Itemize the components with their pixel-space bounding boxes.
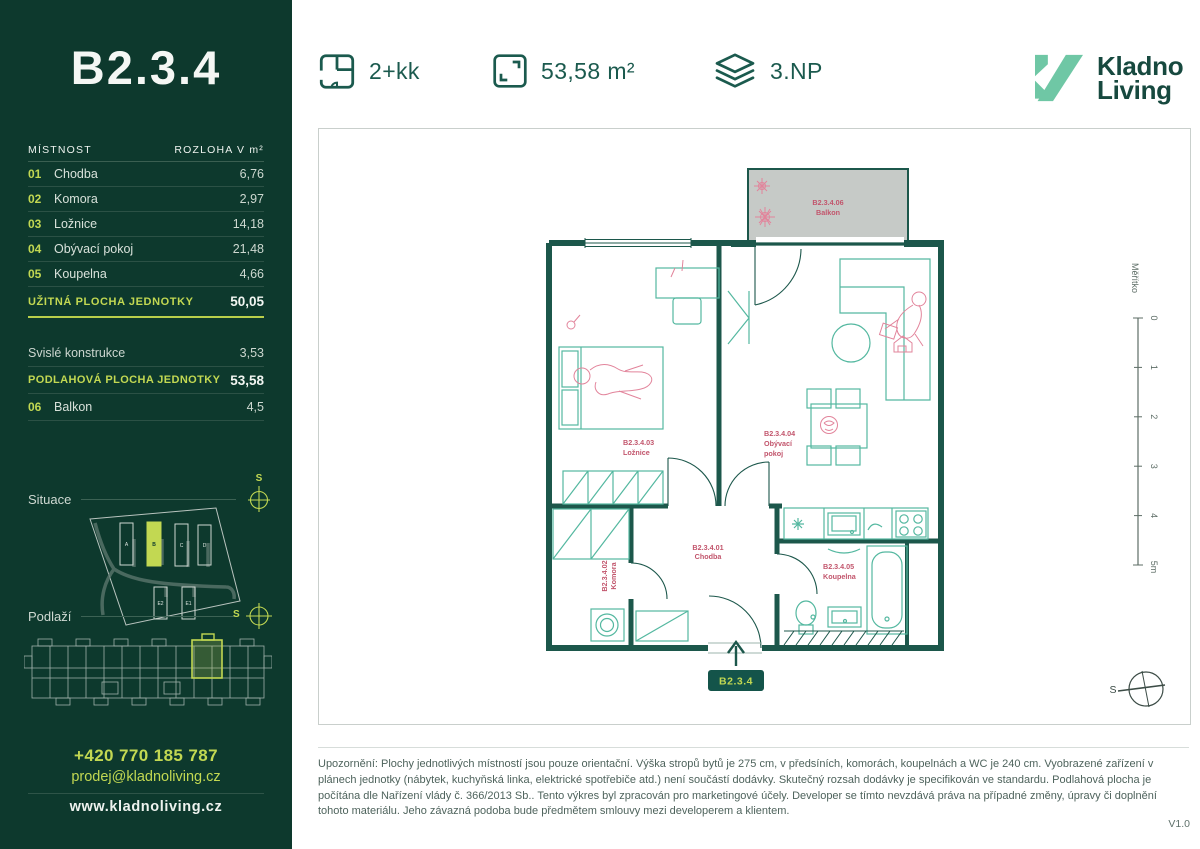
- table-row: 04 Obývací pokoj 21,48: [28, 237, 264, 262]
- compass-letter: S: [1109, 684, 1116, 696]
- table-row: 01 Chodba 6,76: [28, 162, 264, 187]
- entry-marker: B2.3.4: [708, 642, 764, 691]
- plan-frame: B2.3.4.01 Chodba B2.3.4.02 Komora B2.3.4…: [318, 128, 1191, 725]
- area-icon: [492, 53, 528, 89]
- scale-tick: 3: [1149, 464, 1159, 469]
- room-label-bathroom-id: B2.3.4.05: [823, 562, 854, 571]
- floor-area-row: PODLAHOVÁ PLOCHA JEDNOTKY 53,58: [28, 367, 264, 394]
- feature-floor: 3.NP: [713, 52, 823, 90]
- kladno-living-logo-mark: [1033, 54, 1085, 102]
- north-compass: S: [1109, 671, 1165, 707]
- building-label: A: [125, 542, 129, 548]
- table-header: MÍSTNOST ROZLOHA V m²: [28, 136, 264, 162]
- layout-label: 2+kk: [369, 58, 420, 85]
- floor-strip: [24, 626, 272, 712]
- brand-name-line2: Living: [1097, 78, 1183, 102]
- scale-tick: 4: [1149, 513, 1159, 518]
- room-label-living-name1: Obývací: [764, 439, 793, 448]
- room-label-balcony-name: Balkon: [816, 208, 840, 217]
- floorplan-sheet: B2.3.4 MÍSTNOST ROZLOHA V m² 01 Chodba 6…: [0, 0, 1200, 849]
- contact-divider: [28, 793, 264, 794]
- kitchen: [784, 508, 928, 539]
- room-label-hall-id: B2.3.4.01: [692, 543, 723, 552]
- room-label-bedroom-id: B2.3.4.03: [623, 438, 654, 447]
- table-row: 05 Koupelna 4,66: [28, 262, 264, 287]
- table-row: 02 Komora 2,97: [28, 187, 264, 212]
- disclaimer-text: Upozornění: Plochy jednotlivých místnost…: [318, 757, 1176, 820]
- contact-web: www.kladnoliving.cz: [0, 799, 292, 815]
- unit-title: B2.3.4: [0, 40, 292, 95]
- floorplan-drawing: B2.3.4.01 Chodba B2.3.4.02 Komora B2.3.4…: [319, 129, 1190, 724]
- table-row: 03 Ložnice 14,18: [28, 212, 264, 237]
- room-labels: B2.3.4.01 Chodba B2.3.4.02 Komora B2.3.4…: [600, 198, 857, 592]
- contact-phone: +420 770 185 787: [0, 746, 292, 766]
- scale-tick: 5m: [1149, 561, 1159, 574]
- version-label: V1.0: [1168, 818, 1190, 830]
- room-label-hall-name: Chodba: [695, 552, 723, 561]
- doors: [631, 247, 817, 653]
- construction-row: Svislé konstrukce 3,53: [28, 340, 264, 367]
- col-area: ROZLOHA V m²: [174, 144, 264, 156]
- contact-email: prodej@kladnoliving.cz: [0, 769, 292, 785]
- floor-icon: [713, 53, 757, 89]
- room-label-living-name2: pokoj: [764, 449, 783, 458]
- living-furniture: [728, 259, 930, 465]
- scale-bar: Měřítko 0 1 2 3 4 5m: [1130, 263, 1159, 573]
- room-label-bathroom-name: Koupelna: [823, 572, 857, 581]
- bedroom-furniture: [559, 268, 719, 504]
- room-label-bedroom-name: Ložnice: [623, 448, 650, 457]
- room-label-storage-id: B2.3.4.02: [600, 560, 609, 591]
- brand-logo: Kladno Living: [1033, 54, 1183, 102]
- bathroom-mat-hatch: [784, 631, 904, 645]
- room-label-balcony-id: B2.3.4.06: [812, 198, 843, 207]
- footer-divider: [318, 747, 1189, 748]
- podlazi-label: Podlaží: [28, 609, 71, 624]
- usable-area-row: UŽITNÁ PLOCHA JEDNOTKY 50,05: [28, 287, 264, 318]
- feature-layout: 2+kk: [318, 52, 420, 90]
- balcony-row: 06 Balkon 4,5: [28, 394, 264, 421]
- room-label-living-id: B2.3.4.04: [764, 429, 795, 438]
- scale-title: Měřítko: [1130, 263, 1140, 293]
- bathroom-fixtures: [796, 546, 907, 634]
- building-label: B: [152, 542, 156, 548]
- feature-area: 53,58 m²: [492, 52, 635, 90]
- col-room: MÍSTNOST: [28, 144, 92, 156]
- room-label-storage-name: Komora: [609, 561, 618, 589]
- scale-tick: 0: [1149, 315, 1159, 320]
- entry-badge-label: B2.3.4: [719, 676, 753, 688]
- highlighted-unit: [192, 634, 222, 678]
- scale-tick: 1: [1149, 365, 1159, 370]
- floor-label: 3.NP: [770, 58, 823, 85]
- scale-tick: 2: [1149, 414, 1159, 419]
- area-label: 53,58 m²: [541, 58, 635, 85]
- floorplan-icon: [318, 53, 356, 90]
- sidebar: B2.3.4 MÍSTNOST ROZLOHA V m² 01 Chodba 6…: [0, 0, 292, 849]
- building-label: C: [180, 543, 184, 549]
- room-table: MÍSTNOST ROZLOHA V m² 01 Chodba 6,76 02 …: [28, 136, 264, 421]
- storage-furniture: [553, 509, 688, 641]
- building-label: D: [203, 543, 207, 549]
